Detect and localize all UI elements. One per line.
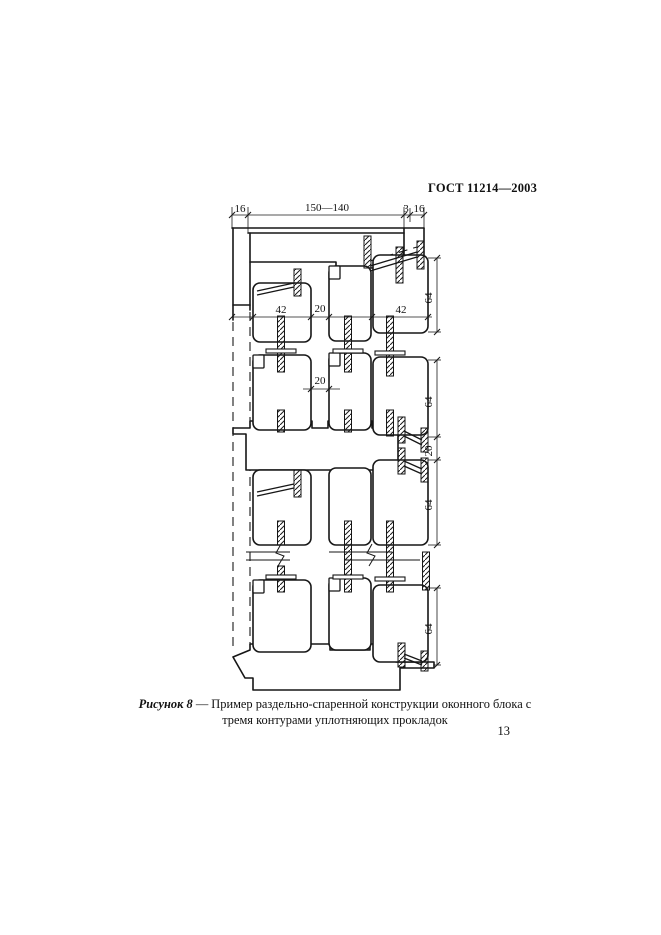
dim-row1-mid: 20 <box>315 303 327 315</box>
dim-top-span: 150—140 <box>305 202 350 214</box>
dim-row2-mid: 20 <box>315 375 327 387</box>
dim-v5: 64 <box>423 623 435 635</box>
dim-row1-right: 42 <box>396 304 407 316</box>
dim-v4: 64 <box>423 499 435 511</box>
dim-top-gap: 3 <box>403 203 409 215</box>
dim-v3: 20 <box>423 445 435 457</box>
caption-label: Рисунок 8 <box>139 697 193 711</box>
page-number: 13 <box>470 724 510 739</box>
dim-top-right: 16 <box>414 203 426 215</box>
dim-row1-left: 42 <box>276 304 287 316</box>
dim-v2: 64 <box>423 396 435 408</box>
caption-text-1: — Пример раздельно-спаренной конструкции… <box>196 697 532 711</box>
document-page: ГОСТ 11214—2003 <box>0 0 661 935</box>
figure-8-drawing: 16 150—140 3 16 42 20 42 20 64 64 20 64 … <box>0 0 661 935</box>
dim-top-left: 16 <box>235 203 247 215</box>
dim-v1: 64 <box>423 292 435 304</box>
caption-line-1: Рисунок 8 — Пример раздельно-спаренной к… <box>130 697 540 713</box>
